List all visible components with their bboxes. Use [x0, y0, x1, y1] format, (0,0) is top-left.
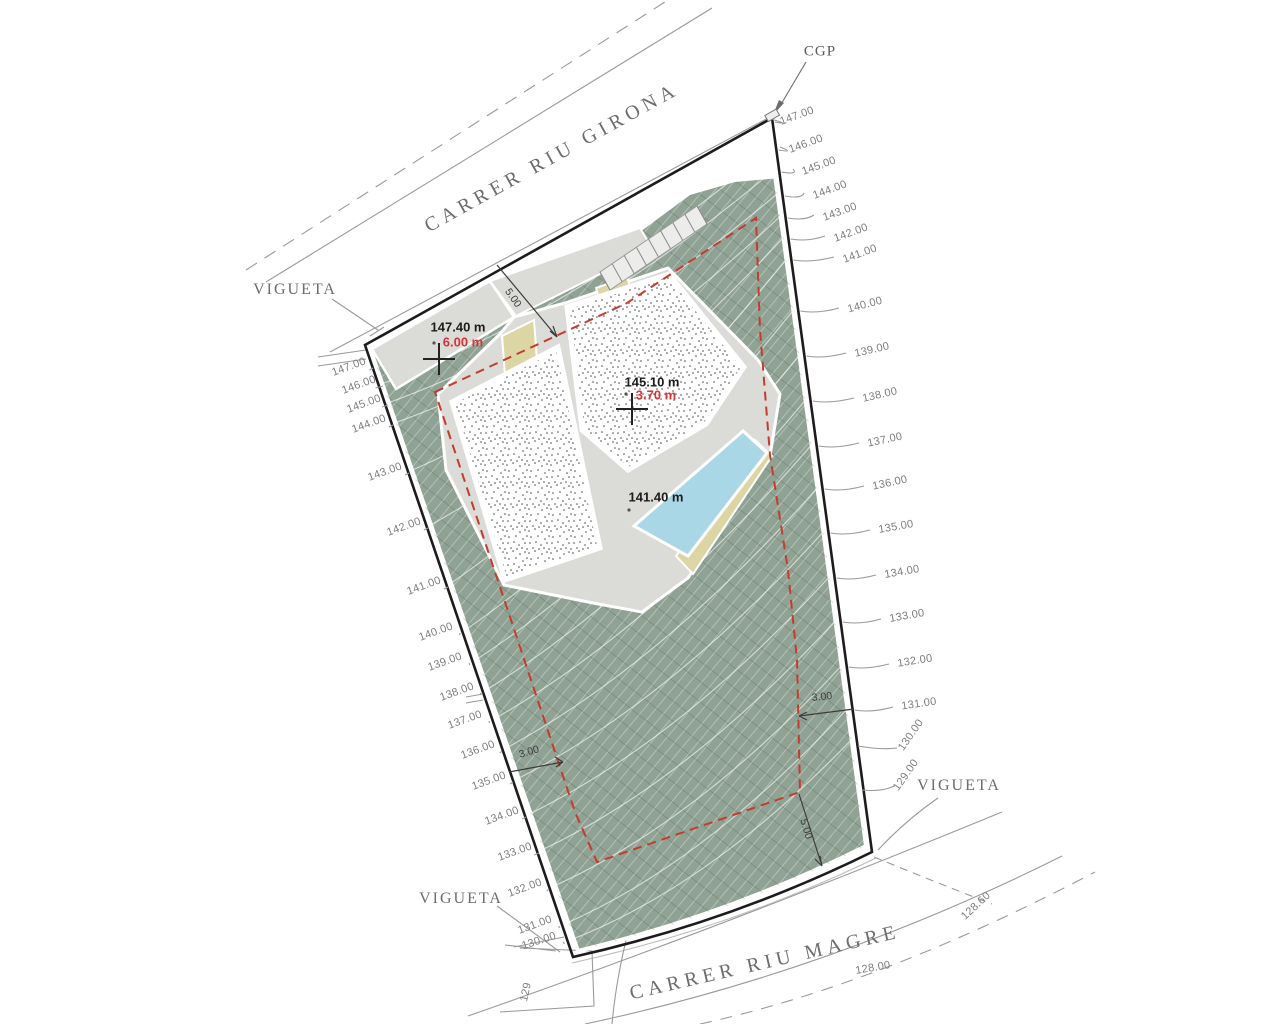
contour-leader [858, 746, 897, 749]
spot-offset-2: 3.70 m [636, 388, 676, 403]
contour-leader [793, 257, 834, 261]
spot-elevation-3: 141.40 m [629, 490, 684, 505]
contour-leader [469, 663, 470, 665]
cgp-label: CGP [804, 44, 836, 61]
contour-leader [831, 530, 870, 534]
spot-offset-1: 6.00 m [443, 335, 483, 350]
contour-leader [849, 664, 889, 668]
contour-leader [807, 353, 846, 357]
contour-leader [837, 575, 876, 579]
contour-leader [843, 619, 881, 623]
contour-leader [800, 308, 839, 312]
contour-leader [785, 193, 804, 197]
spot-elevation-1: 147.40 m [431, 320, 486, 335]
contour-leader [862, 786, 894, 791]
vigueta-label-top-left: VIGUETA [253, 281, 337, 299]
cgp-box [765, 109, 780, 122]
contour-leader [813, 398, 854, 402]
contour-leader [855, 707, 893, 711]
contour-leader [500, 751, 502, 753]
site-plan-drawing [0, 0, 1280, 1024]
contour-leader [563, 942, 565, 944]
contour-leader [819, 443, 859, 447]
site-plan-canvas: CARRER RIU GIRONA CARRER RIU MAGRE CGP V… [0, 0, 1280, 1024]
vigueta-label-right: VIGUETA [917, 777, 1001, 795]
dimension-right-setback: 3.00 [811, 690, 833, 704]
contour-leader [779, 147, 788, 151]
contour-leader [489, 721, 490, 723]
contour-leader [791, 236, 825, 240]
vigueta-label-bottom-left: VIGUETA [419, 890, 503, 908]
contour-leader [782, 169, 795, 173]
contour-leader [547, 889, 549, 891]
contour-leader [788, 215, 814, 219]
contour-leader [825, 486, 864, 490]
